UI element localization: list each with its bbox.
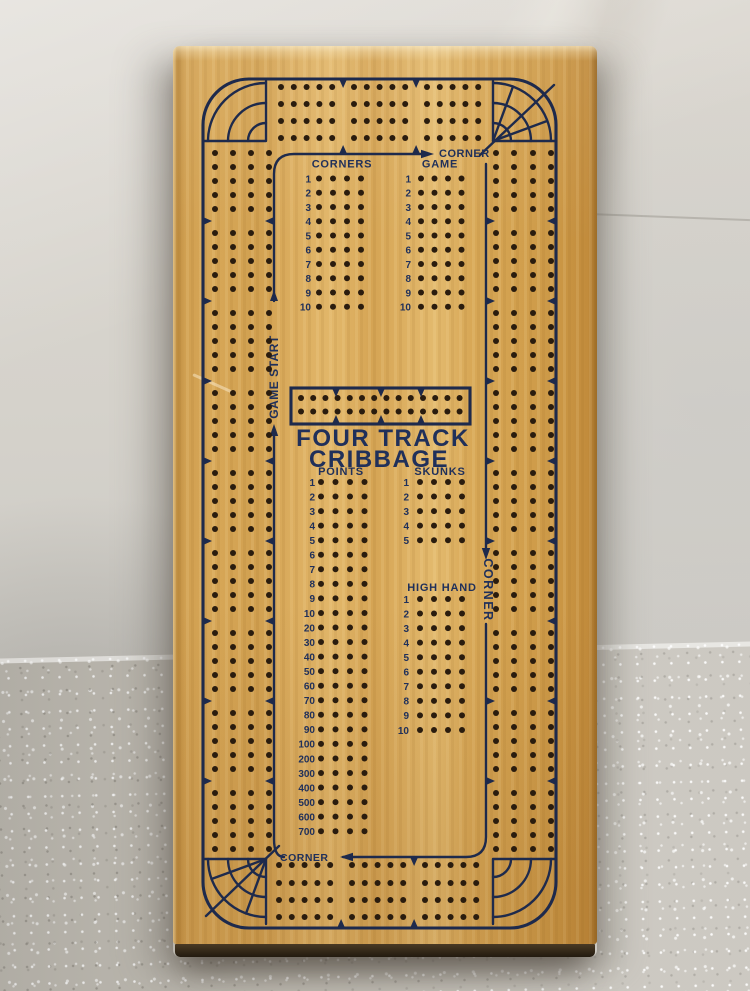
peg-hole	[511, 244, 517, 250]
peg-hole	[493, 818, 499, 824]
peg-hole	[444, 395, 450, 401]
peg-hole	[304, 135, 310, 141]
peg-hole	[266, 432, 272, 438]
peg-hole	[511, 592, 517, 598]
peg-hole	[278, 84, 284, 90]
peg-hole	[318, 479, 324, 485]
peg-hole	[493, 338, 499, 344]
peg-hole	[431, 611, 437, 617]
peg-hole	[445, 698, 451, 704]
peg-hole	[230, 244, 236, 250]
peg-hole	[396, 395, 402, 401]
peg-hole	[230, 578, 236, 584]
inner-line-left-lower	[274, 434, 284, 857]
peg-hole	[248, 724, 254, 730]
peg-hole	[330, 218, 336, 224]
peg-hole	[362, 683, 368, 689]
peg-hole	[548, 752, 554, 758]
peg-hole	[333, 785, 339, 791]
peg-hole	[248, 178, 254, 184]
peg-hole	[347, 610, 353, 616]
peg-hole	[445, 233, 451, 239]
peg-hole	[230, 564, 236, 570]
peg-hole	[266, 206, 272, 212]
peg-hole	[459, 190, 465, 196]
peg-hole	[530, 470, 536, 476]
peg-hole	[302, 862, 308, 868]
row-number: 10	[300, 303, 312, 314]
peg-hole	[266, 578, 272, 584]
peg-hole	[437, 135, 443, 141]
peg-hole	[358, 304, 364, 310]
peg-hole	[493, 286, 499, 292]
peg-hole	[230, 630, 236, 636]
peg-hole	[511, 846, 517, 852]
peg-hole	[266, 470, 272, 476]
peg-hole	[322, 409, 328, 415]
peg-hole	[248, 738, 254, 744]
row-number: 4	[403, 521, 409, 532]
group-divider-notch	[203, 777, 212, 785]
peg-hole	[266, 804, 272, 810]
row-number: 7	[403, 682, 409, 693]
score-block-game: GAME12345678910	[400, 159, 465, 314]
peg-hole	[511, 310, 517, 316]
row-number: 7	[305, 260, 311, 271]
peg-hole	[493, 258, 499, 264]
peg-hole	[493, 686, 499, 692]
peg-hole	[493, 164, 499, 170]
peg-hole	[387, 897, 393, 903]
peg-hole	[493, 658, 499, 664]
peg-hole	[230, 484, 236, 490]
peg-hole	[362, 639, 368, 645]
peg-hole	[548, 564, 554, 570]
peg-hole	[344, 247, 350, 253]
row-number: 10	[304, 609, 316, 620]
peg-hole	[212, 324, 218, 330]
peg-hole	[359, 395, 365, 401]
peg-hole	[460, 862, 466, 868]
score-block-points: POINTS1234567891020304050607080901002003…	[298, 466, 367, 838]
row-number: 2	[403, 492, 409, 503]
peg-hole	[432, 247, 438, 253]
peg-hole	[462, 118, 468, 124]
peg-hole	[316, 204, 322, 210]
peg-hole	[347, 581, 353, 587]
peg-hole	[347, 409, 353, 415]
peg-hole	[289, 897, 295, 903]
row-number: 1	[403, 478, 409, 489]
group-divider-notch	[377, 388, 385, 397]
peg-hole	[530, 738, 536, 744]
peg-hole	[371, 395, 377, 401]
peg-hole	[432, 261, 438, 267]
peg-hole	[248, 658, 254, 664]
peg-hole	[230, 686, 236, 692]
peg-hole	[248, 644, 254, 650]
peg-hole	[358, 204, 364, 210]
group-divider-notch	[265, 777, 274, 785]
peg-hole	[459, 669, 465, 675]
peg-hole	[212, 230, 218, 236]
peg-hole	[248, 818, 254, 824]
row-number: 1	[309, 478, 315, 489]
peg-hole	[330, 176, 336, 182]
peg-hole	[212, 352, 218, 358]
peg-hole	[266, 192, 272, 198]
peg-hole	[418, 176, 424, 182]
peg-hole	[316, 176, 322, 182]
peg-hole	[371, 409, 377, 415]
group-divider-notch	[547, 217, 556, 225]
group-divider-notch	[486, 297, 495, 305]
peg-hole	[462, 135, 468, 141]
row-number: 6	[403, 668, 409, 679]
peg-hole	[314, 897, 320, 903]
peg-hole	[230, 338, 236, 344]
fan-arc	[228, 103, 266, 141]
peg-hole	[445, 190, 451, 196]
peg-hole	[459, 290, 465, 296]
row-number: 5	[403, 536, 409, 547]
peg-hole	[432, 218, 438, 224]
peg-hole	[375, 897, 381, 903]
peg-hole	[445, 712, 451, 718]
peg-hole	[212, 832, 218, 838]
row-number: 3	[309, 507, 315, 518]
peg-hole	[493, 578, 499, 584]
peg-hole	[445, 204, 451, 210]
peg-hole	[493, 592, 499, 598]
peg-hole	[298, 409, 304, 415]
peg-hole	[445, 261, 451, 267]
corner-game-arrow-head	[421, 150, 434, 159]
peg-hole	[473, 897, 479, 903]
peg-hole	[493, 710, 499, 716]
group-divider-notch	[339, 145, 347, 154]
peg-hole	[445, 640, 451, 646]
peg-hole	[230, 550, 236, 556]
peg-hole	[459, 304, 465, 310]
peg-hole	[511, 526, 517, 532]
peg-hole	[548, 484, 554, 490]
peg-hole	[445, 275, 451, 281]
peg-hole	[432, 233, 438, 239]
peg-hole	[530, 498, 536, 504]
peg-hole	[493, 766, 499, 772]
peg-hole	[318, 552, 324, 558]
peg-hole	[530, 606, 536, 612]
peg-hole	[266, 230, 272, 236]
peg-hole	[548, 192, 554, 198]
peg-hole	[459, 479, 465, 485]
row-number: 3	[405, 203, 411, 214]
peg-hole	[511, 710, 517, 716]
peg-hole	[530, 550, 536, 556]
peg-hole	[511, 446, 517, 452]
peg-hole	[329, 84, 335, 90]
peg-hole	[400, 897, 406, 903]
peg-hole	[266, 498, 272, 504]
fan-arc	[248, 123, 266, 141]
peg-hole	[248, 404, 254, 410]
peg-hole	[230, 644, 236, 650]
peg-hole	[248, 164, 254, 170]
row-number: 60	[304, 682, 316, 693]
peg-hole	[362, 712, 368, 718]
peg-hole	[422, 897, 428, 903]
peg-hole	[344, 204, 350, 210]
peg-hole	[318, 581, 324, 587]
peg-hole	[351, 84, 357, 90]
peg-hole	[248, 832, 254, 838]
group-divider-notch	[486, 377, 495, 385]
peg-hole	[431, 727, 437, 733]
peg-hole	[333, 595, 339, 601]
bottom-track	[276, 857, 479, 928]
peg-hole	[212, 150, 218, 156]
peg-hole	[248, 606, 254, 612]
peg-hole	[511, 206, 517, 212]
peg-hole	[402, 101, 408, 107]
score-block-high-hand: HIGH HAND12345678910	[398, 582, 477, 737]
peg-hole	[330, 233, 336, 239]
peg-hole	[230, 192, 236, 198]
peg-hole	[316, 84, 322, 90]
peg-hole	[530, 324, 536, 330]
peg-hole	[349, 897, 355, 903]
peg-hole	[445, 494, 451, 500]
peg-hole	[511, 338, 517, 344]
peg-hole	[310, 395, 316, 401]
peg-hole	[230, 724, 236, 730]
peg-hole	[530, 286, 536, 292]
peg-hole	[493, 150, 499, 156]
peg-hole	[318, 712, 324, 718]
peg-hole	[304, 118, 310, 124]
peg-hole	[530, 592, 536, 598]
peg-hole	[389, 135, 395, 141]
peg-hole	[377, 135, 383, 141]
peg-hole	[230, 846, 236, 852]
peg-hole	[230, 310, 236, 316]
peg-hole	[432, 290, 438, 296]
peg-hole	[417, 712, 423, 718]
peg-hole	[387, 914, 393, 920]
peg-hole	[445, 304, 451, 310]
peg-hole	[347, 639, 353, 645]
peg-hole	[302, 897, 308, 903]
peg-hole	[548, 738, 554, 744]
peg-hole	[548, 658, 554, 664]
peg-hole	[344, 275, 350, 281]
peg-hole	[248, 470, 254, 476]
peg-hole	[362, 610, 368, 616]
peg-hole	[248, 526, 254, 532]
peg-hole	[358, 261, 364, 267]
peg-hole	[511, 230, 517, 236]
peg-hole	[511, 164, 517, 170]
peg-hole	[316, 101, 322, 107]
peg-hole	[212, 484, 218, 490]
peg-hole	[431, 494, 437, 500]
peg-hole	[266, 324, 272, 330]
peg-hole	[530, 790, 536, 796]
peg-hole	[418, 261, 424, 267]
peg-hole	[318, 755, 324, 761]
points-header: POINTS	[318, 466, 364, 478]
peg-hole	[400, 880, 406, 886]
peg-hole	[417, 523, 423, 529]
peg-hole	[431, 625, 437, 631]
peg-hole	[347, 654, 353, 660]
peg-hole	[248, 484, 254, 490]
top-track	[278, 79, 481, 154]
peg-hole	[530, 338, 536, 344]
peg-hole	[548, 592, 554, 598]
peg-hole	[230, 432, 236, 438]
peg-hole	[445, 290, 451, 296]
peg-hole	[530, 244, 536, 250]
peg-hole	[266, 790, 272, 796]
peg-hole	[459, 508, 465, 514]
peg-hole	[230, 352, 236, 358]
peg-hole	[347, 395, 353, 401]
peg-hole	[493, 672, 499, 678]
peg-hole	[212, 286, 218, 292]
peg-hole	[462, 84, 468, 90]
score-block-skunks: SKUNKS12345	[403, 466, 465, 547]
peg-hole	[459, 233, 465, 239]
peg-hole	[408, 395, 414, 401]
fan-edges	[493, 859, 556, 924]
peg-hole	[347, 523, 353, 529]
group-divider-notch	[203, 217, 212, 225]
fan-spokes	[480, 85, 554, 155]
peg-hole	[266, 710, 272, 716]
peg-hole	[364, 84, 370, 90]
peg-hole	[459, 247, 465, 253]
game-header: GAME	[422, 159, 458, 171]
peg-hole	[310, 409, 316, 415]
peg-hole	[530, 432, 536, 438]
peg-hole	[289, 880, 295, 886]
peg-hole	[493, 498, 499, 504]
peg-hole	[511, 484, 517, 490]
peg-hole	[417, 654, 423, 660]
peg-hole	[266, 446, 272, 452]
peg-hole	[327, 897, 333, 903]
peg-hole	[333, 552, 339, 558]
peg-hole	[530, 630, 536, 636]
peg-hole	[344, 304, 350, 310]
peg-hole	[548, 230, 554, 236]
peg-hole	[445, 218, 451, 224]
start-box	[291, 388, 470, 424]
peg-hole	[530, 658, 536, 664]
peg-hole	[266, 686, 272, 692]
peg-hole	[511, 366, 517, 372]
peg-hole	[548, 672, 554, 678]
peg-hole	[314, 914, 320, 920]
peg-hole	[266, 484, 272, 490]
peg-hole	[347, 755, 353, 761]
peg-hole	[493, 846, 499, 852]
peg-hole	[493, 644, 499, 650]
peg-hole	[278, 118, 284, 124]
peg-hole	[266, 178, 272, 184]
peg-hole	[530, 644, 536, 650]
fan-arc	[493, 859, 551, 917]
peg-hole	[462, 101, 468, 107]
peg-hole	[530, 804, 536, 810]
peg-hole	[548, 470, 554, 476]
peg-hole	[276, 897, 282, 903]
group-divider-notch	[486, 217, 495, 225]
peg-hole	[459, 727, 465, 733]
generated-holes-and-blocks: CORNERS12345678910GAME12345678910POINTS1…	[203, 79, 556, 928]
up-arrow-mid-left	[270, 290, 278, 301]
row-number: 7	[309, 565, 315, 576]
peg-hole	[212, 752, 218, 758]
peg-hole	[347, 508, 353, 514]
peg-hole	[266, 404, 272, 410]
peg-hole	[364, 118, 370, 124]
peg-hole	[511, 658, 517, 664]
row-number: 8	[305, 274, 311, 285]
peg-hole	[431, 523, 437, 529]
peg-hole	[333, 799, 339, 805]
peg-hole	[330, 304, 336, 310]
peg-hole	[330, 275, 336, 281]
group-divider-notch	[486, 777, 495, 785]
peg-hole	[511, 404, 517, 410]
peg-hole	[473, 862, 479, 868]
peg-hole	[530, 404, 536, 410]
peg-hole	[318, 537, 324, 543]
peg-hole	[493, 404, 499, 410]
peg-hole	[318, 523, 324, 529]
peg-hole	[459, 698, 465, 704]
peg-hole	[248, 578, 254, 584]
peg-hole	[347, 828, 353, 834]
peg-hole	[316, 135, 322, 141]
peg-hole	[212, 258, 218, 264]
peg-hole	[349, 914, 355, 920]
peg-hole	[304, 84, 310, 90]
peg-hole	[230, 286, 236, 292]
peg-hole	[333, 581, 339, 587]
row-number: 5	[309, 536, 315, 547]
peg-hole	[459, 204, 465, 210]
peg-hole	[248, 390, 254, 396]
peg-hole	[548, 432, 554, 438]
peg-hole	[349, 880, 355, 886]
peg-hole	[530, 446, 536, 452]
peg-hole	[422, 862, 428, 868]
peg-hole	[230, 258, 236, 264]
peg-hole	[511, 766, 517, 772]
peg-hole	[230, 790, 236, 796]
peg-hole	[230, 470, 236, 476]
peg-hole	[266, 418, 272, 424]
peg-hole	[493, 724, 499, 730]
row-number: 100	[298, 740, 315, 751]
peg-hole	[327, 862, 333, 868]
peg-hole	[437, 118, 443, 124]
peg-hole	[347, 537, 353, 543]
